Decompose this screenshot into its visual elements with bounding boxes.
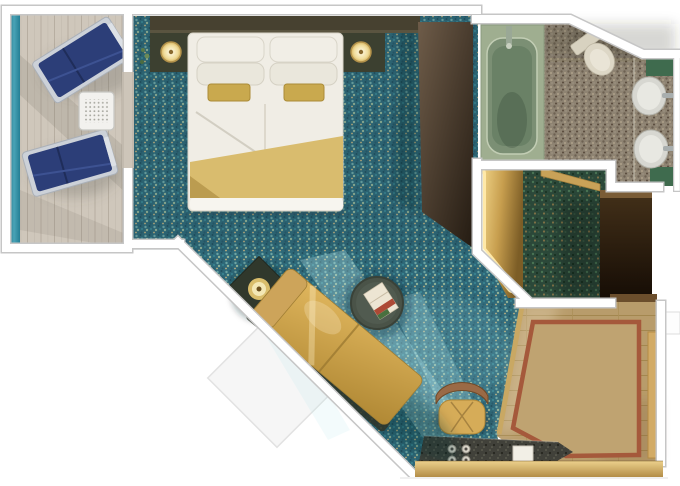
king-bed [188,33,343,211]
dark-sliding-panel [600,192,652,298]
entry-foyer [497,302,680,462]
note-pad [513,446,533,462]
tub-faucet [506,26,512,44]
sheet-edge [190,198,343,210]
balcony-table [79,92,114,130]
round-lamp-left [161,42,181,62]
hall-shadow [560,200,604,298]
accent-pillow [284,84,324,101]
pillow [197,63,264,85]
balcony [8,6,134,249]
round-lamp-right [351,42,371,62]
faucet [662,93,674,98]
bathtub [481,25,544,163]
pillow [270,63,337,85]
tv-wall-panel [418,22,473,248]
pillow [197,37,264,62]
pillow [270,37,337,62]
baseboard-band [415,461,663,477]
balcony-door-opening [122,72,134,168]
stateroom-floor-plan [0,0,680,486]
round-coffee-table [351,277,403,329]
floor-plan-canvas [0,0,680,486]
accent-pillow [208,84,250,101]
border-rug [513,322,639,456]
counter-panel-top [646,57,675,76]
